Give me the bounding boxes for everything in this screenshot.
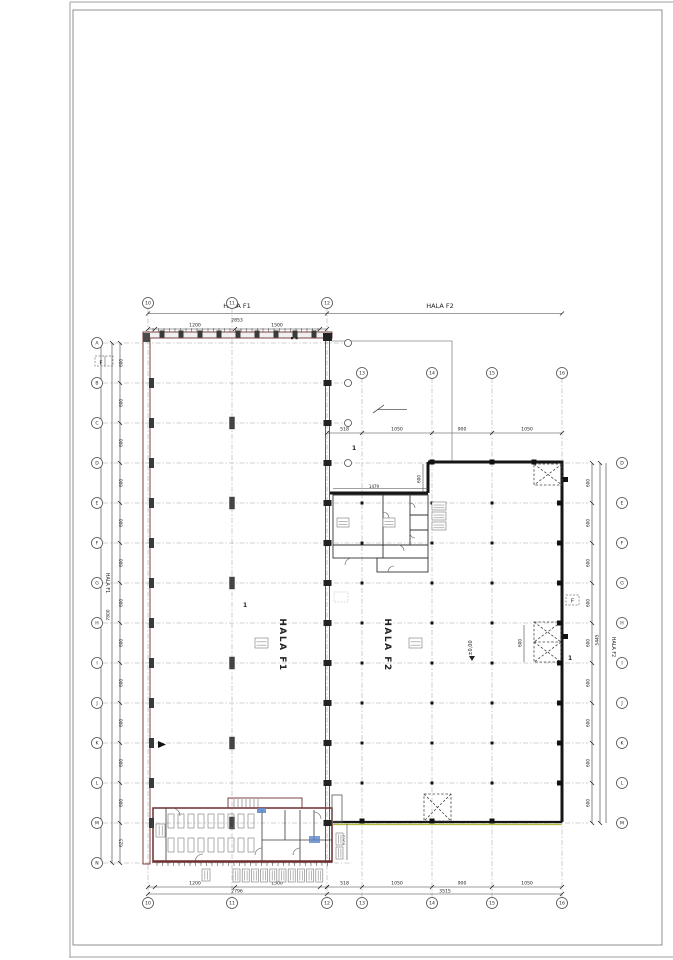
right-step-dim: 600: [586, 599, 591, 607]
axis-bubble-label: 15: [489, 901, 495, 907]
table: [198, 814, 204, 828]
sheet-frame: [70, 2, 673, 958]
column: [324, 820, 332, 826]
pilaster: [149, 738, 154, 748]
column-dot: [491, 502, 494, 505]
pilaster: [149, 498, 154, 508]
axis-bubble-label: M: [95, 821, 99, 827]
axis-bubble-label: D: [620, 461, 624, 467]
pilaster: [149, 698, 154, 708]
column-dot: [361, 782, 364, 785]
pilaster: [149, 418, 154, 428]
f2-seg-dim: 1050: [391, 881, 403, 887]
room-tag: [288, 869, 295, 882]
door-arc: [255, 848, 262, 855]
left-step-dim: 600: [119, 599, 124, 607]
room-tag: [337, 518, 349, 527]
pilaster: [293, 331, 298, 338]
door-arc: [293, 848, 300, 855]
hala-f1-big-label: HALA F1: [277, 618, 287, 671]
table: [178, 838, 184, 852]
column-dot: [361, 622, 364, 625]
table: [188, 814, 194, 828]
f2-door-arcs: [345, 503, 415, 572]
table: [168, 814, 174, 828]
room-tag: [409, 638, 422, 648]
column: [230, 657, 235, 669]
f2-seg-dim: 1050: [521, 881, 533, 887]
column: [557, 741, 563, 746]
outer-frame-line: [70, 2, 673, 958]
right-step-dim: 600: [586, 479, 591, 487]
column: [324, 700, 332, 706]
column: [490, 819, 495, 824]
axis-bubble-label: 11: [229, 301, 235, 307]
pilaster: [312, 331, 317, 338]
axis-bubble-label: D: [95, 461, 99, 467]
door-arc: [383, 512, 389, 518]
left-step-dim: 600: [119, 559, 124, 567]
office-protrusion: [228, 798, 302, 808]
right-step-dim: 600: [586, 799, 591, 807]
axis-bubble-label: H: [95, 621, 98, 627]
room-tag: [336, 833, 343, 845]
left-step-dim: 600: [119, 719, 124, 727]
column: [557, 781, 563, 786]
f1-seg-dim: 1200: [189, 881, 201, 887]
column-dot: [491, 742, 494, 745]
f2-seg-dim: 900: [458, 427, 467, 433]
column: [324, 460, 332, 466]
axis-bubble-label: L: [96, 781, 99, 787]
door-arc: [410, 503, 415, 508]
room-tag: [432, 522, 446, 530]
column-dot: [431, 782, 434, 785]
wall-marker: [563, 477, 568, 482]
column: [324, 500, 332, 506]
f2-canopy-outline: [332, 341, 452, 461]
column: [324, 420, 332, 426]
column: [557, 701, 563, 706]
pilaster: [149, 618, 154, 628]
column: [557, 501, 563, 506]
axis-bubble-label: 14: [429, 371, 435, 377]
column-dot: [491, 662, 494, 665]
axis-bubble-label: C: [95, 421, 98, 427]
column-dot: [361, 542, 364, 545]
office-outline: [153, 808, 332, 862]
f1-top-seg-dim: 1200: [189, 323, 201, 329]
f2-bottom-total-dim: 3515: [439, 889, 451, 895]
column-dot: [431, 582, 434, 585]
room-tag: [255, 638, 268, 648]
room-tag: [233, 869, 240, 882]
column: [324, 540, 332, 546]
axis-bubble-label: E: [96, 501, 99, 507]
room-tag: [242, 869, 249, 882]
axis-bubble-label: J: [620, 701, 622, 707]
column: [557, 581, 563, 586]
pilaster: [160, 331, 165, 338]
column: [324, 580, 332, 586]
right-step-dim: 600: [586, 759, 591, 767]
right-step-dim: 600: [586, 679, 591, 687]
column-dot: [491, 542, 494, 545]
axis-bubble-label: G: [620, 581, 624, 587]
f1-top-seg-dim: 1500: [271, 323, 283, 329]
f2-seg-dim: 900: [458, 881, 467, 887]
column: [430, 460, 435, 465]
f-box-left: [95, 356, 113, 366]
pilaster: [198, 331, 203, 338]
left-step-dim: 625: [119, 839, 124, 847]
axis-bubble: [345, 380, 352, 387]
pilaster: [179, 331, 184, 338]
axis-bubble-label: H: [620, 621, 623, 627]
drawing-sheet: 5185181050105090090010501050120015006006…: [0, 0, 673, 960]
misc-symbols: [95, 337, 579, 748]
pilaster: [149, 658, 154, 668]
brace-bottom: [424, 794, 451, 821]
left-step-dim: 600: [119, 679, 124, 687]
door-arc: [388, 566, 394, 572]
blue-partition: [309, 836, 320, 843]
axis-bubble-label: 11: [229, 901, 235, 907]
pilaster: [274, 331, 279, 338]
room-tag: [261, 869, 268, 882]
f2-seg-dim: 1050: [391, 427, 403, 433]
axis-bubble-label: L: [621, 781, 624, 787]
column-dot: [361, 702, 364, 705]
column-dot: [361, 662, 364, 665]
table: [238, 838, 244, 852]
axis-bubble-label: 15: [489, 371, 495, 377]
pilaster: [149, 578, 154, 588]
door-arc: [314, 812, 321, 819]
room-tag: [279, 869, 286, 882]
axis-bubble-label: 16: [559, 901, 565, 907]
column-dot: [431, 542, 434, 545]
left-step-dim: 600: [119, 479, 124, 487]
axis-bubble-label: F: [96, 541, 99, 547]
axis-bubble-label: M: [620, 821, 624, 827]
hala-f2-big-label: HALA F2: [382, 618, 392, 671]
hala-f2-top-label: HALA F2: [426, 302, 454, 310]
hala-f2-building: [330, 341, 562, 824]
column-dot: [491, 782, 494, 785]
axis-bubble-label: 16: [559, 371, 565, 377]
pilaster: [217, 331, 222, 338]
table: [178, 814, 184, 828]
static-texts: HALA F1 HALA F2 2853 1200 1500 2796 3515…: [99, 302, 616, 895]
table: [208, 838, 214, 852]
axis-grid: [103, 308, 588, 898]
column-dot: [431, 662, 434, 665]
table: [208, 814, 214, 828]
pilaster: [149, 538, 154, 548]
axis-bubble-label: 12: [324, 301, 330, 307]
table: [218, 814, 224, 828]
f-label-right: F: [571, 599, 574, 605]
office-doors: [172, 808, 321, 862]
left-total-dim: 7800: [106, 609, 112, 620]
f2-seg-dim: 518: [340, 427, 349, 433]
axis-bubble: [345, 420, 352, 427]
column: [230, 737, 235, 749]
table: [218, 838, 224, 852]
axis-bubble-label: 14: [429, 901, 435, 907]
left-step-dim: 600: [119, 519, 124, 527]
pilaster: [255, 331, 260, 338]
column-dot: [491, 702, 494, 705]
f2-seg-dim: 518: [340, 881, 349, 887]
door-arc: [345, 558, 352, 565]
axis-bubble-label: G: [95, 581, 99, 587]
column: [360, 819, 365, 824]
column: [230, 577, 235, 589]
section-flag: [158, 741, 166, 748]
column-dot: [361, 502, 364, 505]
axis-bubble-label: J: [95, 701, 97, 707]
brace-x: [424, 794, 451, 821]
door-arc: [410, 533, 415, 538]
detail-mark-1: 1: [243, 602, 247, 609]
table: [168, 838, 174, 852]
right-step-dim: 600: [586, 559, 591, 567]
office-annex: [332, 795, 342, 822]
room-tag: [432, 512, 446, 520]
right-step-dim: 600: [586, 719, 591, 727]
pilaster: [236, 331, 241, 338]
table: [238, 814, 244, 828]
table: [198, 838, 204, 852]
left-step-dim: 600: [119, 639, 124, 647]
generated-details: 1010111112121313141415151616ABCDEFGHIJKL…: [92, 298, 628, 909]
column-dot: [431, 742, 434, 745]
room-tag: [307, 869, 314, 882]
axis-bubble-label: 10: [145, 301, 151, 307]
blue-partition: [257, 808, 266, 813]
column: [557, 621, 563, 626]
table: [188, 838, 194, 852]
pilaster: [149, 778, 154, 788]
column-dot: [491, 622, 494, 625]
column-dot: [361, 742, 364, 745]
column: [324, 620, 332, 626]
axis-bubble-label: 13: [359, 901, 365, 907]
axis-bubble-label: 13: [359, 371, 365, 377]
room-tag: [297, 869, 304, 882]
axis-bubble-label: B: [95, 381, 98, 387]
office-partitions: [166, 808, 332, 862]
brace-x: [534, 464, 562, 485]
left-step-dim: 600: [119, 439, 124, 447]
f2-seg-dim: 1050: [521, 427, 533, 433]
room-tag: [251, 869, 258, 882]
hala-f1-building: [143, 332, 332, 864]
f1-corner-column: [323, 333, 332, 341]
f1-corner-column-left: [143, 333, 150, 342]
faint-tag: [334, 592, 348, 602]
f1-top-total-dim: 2853: [231, 318, 243, 324]
brace-mid-right: [534, 622, 561, 662]
column-dot: [431, 702, 434, 705]
axis-bubble-label: 12: [324, 901, 330, 907]
column: [324, 660, 332, 666]
f1-left-wall: [143, 333, 150, 864]
left-step-dim: 600: [119, 399, 124, 407]
column: [230, 497, 235, 509]
f-label-left: F: [99, 361, 102, 367]
axis-bubble-label: I: [96, 661, 97, 667]
pilaster: [149, 458, 154, 468]
f2-room-block: [333, 495, 428, 572]
axis-bubble: [345, 340, 352, 347]
room-tag: [156, 824, 165, 837]
door-arc: [398, 545, 404, 551]
right-step-dim: 600: [586, 639, 591, 647]
column: [230, 417, 235, 429]
table: [248, 838, 254, 852]
table: [248, 814, 254, 828]
column: [490, 460, 495, 465]
room-tag: [432, 502, 446, 510]
room-tag: [202, 869, 210, 881]
column: [532, 460, 537, 465]
detail-mark-1: 1: [352, 445, 356, 452]
pilaster: [149, 378, 154, 388]
left-step-dim: 600: [119, 799, 124, 807]
axis-bubble: [345, 460, 352, 467]
right-total-dim: 5445: [595, 634, 601, 645]
axis-bubble-label: N: [95, 861, 98, 867]
left-step-dim: 600: [119, 759, 124, 767]
ramp-arrow: [373, 405, 407, 413]
column: [324, 740, 332, 746]
column-dot: [431, 622, 434, 625]
column: [557, 661, 563, 666]
column-dot: [361, 582, 364, 585]
table: [228, 838, 234, 852]
detail-mark-1: 1: [568, 655, 572, 662]
column: [324, 380, 332, 386]
column: [430, 819, 435, 824]
f1-bottom-total-dim: 2796: [231, 889, 243, 895]
level-flag: [469, 656, 475, 661]
room-tag: [316, 869, 323, 882]
column: [324, 780, 332, 786]
inner-dim-600: 600: [518, 639, 523, 647]
room-tag: [383, 518, 395, 527]
pilaster: [149, 818, 154, 828]
left-step-dim: 600: [119, 359, 124, 367]
level-mark: ±0,00: [468, 640, 474, 655]
room-tag: [336, 847, 343, 859]
floor-plan-canvas: 5185181050105090090010501050120015006006…: [0, 0, 673, 960]
hala-f2-side-label: HALA F2: [610, 637, 616, 657]
inner-dim-600: 600: [417, 475, 422, 483]
axis-bubble-label: I: [621, 661, 622, 667]
hala-f1-side-label: HALA F1: [104, 573, 110, 593]
room-tag: [270, 869, 277, 882]
axis-bubble-label: E: [621, 501, 624, 507]
column: [557, 541, 563, 546]
brace-top-right: [534, 464, 562, 485]
axis-bubble-label: 10: [145, 901, 151, 907]
inner-frame: [73, 10, 662, 945]
wall-marker: [563, 634, 568, 639]
axis-bubble-label: F: [621, 541, 624, 547]
room-annex: [377, 558, 428, 572]
column-dot: [491, 582, 494, 585]
right-step-dim: 600: [586, 519, 591, 527]
door-arc: [172, 808, 180, 816]
